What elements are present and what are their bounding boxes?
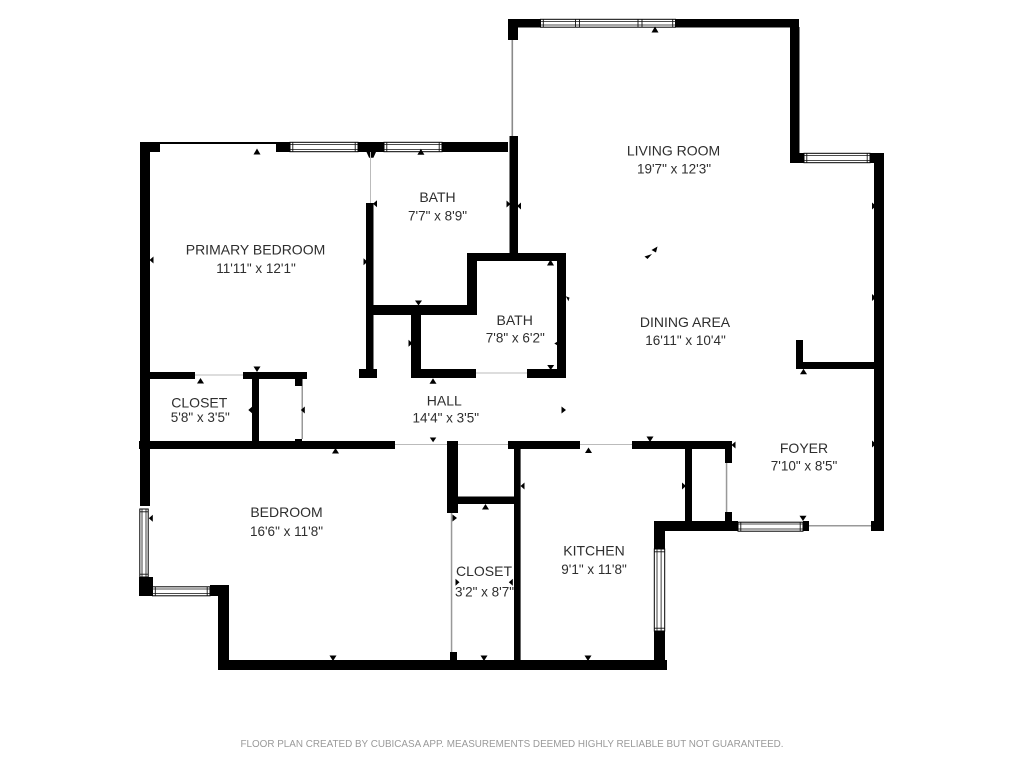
svg-text:19'7" x 12'3": 19'7" x 12'3" <box>637 162 711 177</box>
svg-text:7'8" x 6'2": 7'8" x 6'2" <box>486 330 545 345</box>
svg-text:16'6" x 11'8": 16'6" x 11'8" <box>250 524 323 539</box>
svg-text:14'4" x 3'5": 14'4" x 3'5" <box>413 411 480 426</box>
svg-text:7'10" x 8'5": 7'10" x 8'5" <box>771 459 838 474</box>
svg-text:16'11" x 10'4": 16'11" x 10'4" <box>645 333 726 348</box>
svg-text:9'1" x 11'8": 9'1" x 11'8" <box>561 562 627 577</box>
svg-text:5'8" x 3'5": 5'8" x 3'5" <box>171 410 230 425</box>
svg-text:11'11" x 12'1": 11'11" x 12'1" <box>216 261 296 276</box>
svg-text:KITCHEN: KITCHEN <box>563 543 624 559</box>
svg-text:DINING AREA: DINING AREA <box>640 314 731 330</box>
svg-text:CLOSET: CLOSET <box>456 563 512 579</box>
svg-text:HALL: HALL <box>427 392 462 408</box>
svg-text:BEDROOM: BEDROOM <box>250 504 322 520</box>
svg-text:7'7" x 8'9": 7'7" x 8'9" <box>408 209 467 224</box>
svg-text:PRIMARY BEDROOM: PRIMARY BEDROOM <box>186 242 326 258</box>
svg-text:LIVING ROOM: LIVING ROOM <box>627 143 720 159</box>
svg-text:CLOSET: CLOSET <box>171 394 227 410</box>
svg-text:FOYER: FOYER <box>780 440 828 456</box>
svg-text:BATH: BATH <box>497 312 533 328</box>
svg-text:BATH: BATH <box>419 189 455 205</box>
svg-text:3'2" x 8'7": 3'2" x 8'7" <box>455 585 514 600</box>
svg-text:FLOOR PLAN CREATED BY CUBICASA: FLOOR PLAN CREATED BY CUBICASA APP. MEAS… <box>240 739 783 750</box>
